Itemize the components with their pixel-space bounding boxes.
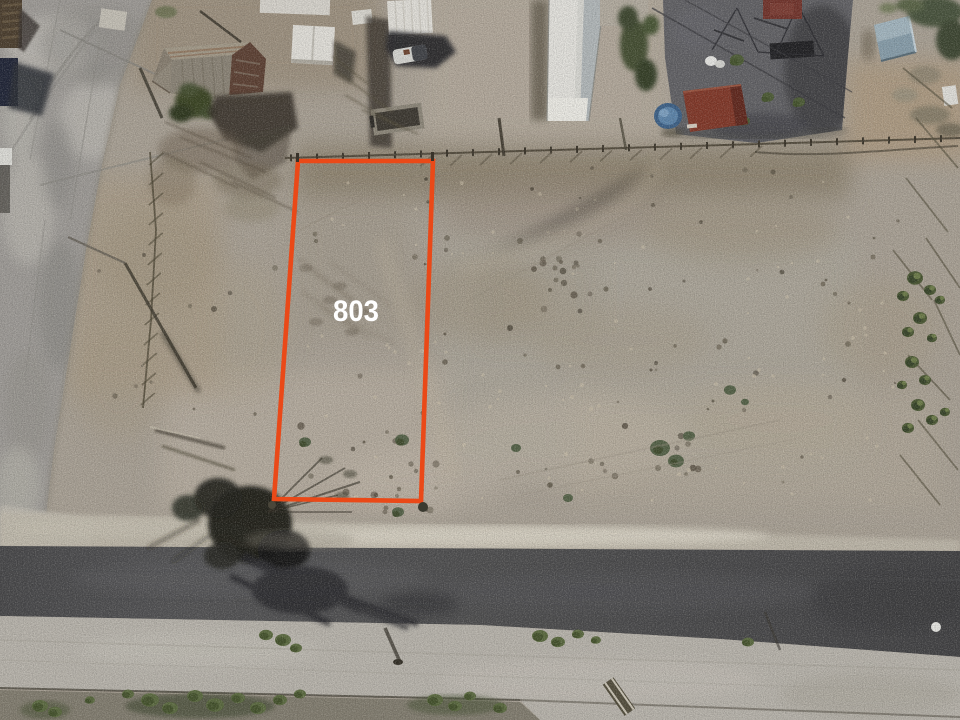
svg-text:803: 803 — [333, 295, 379, 328]
